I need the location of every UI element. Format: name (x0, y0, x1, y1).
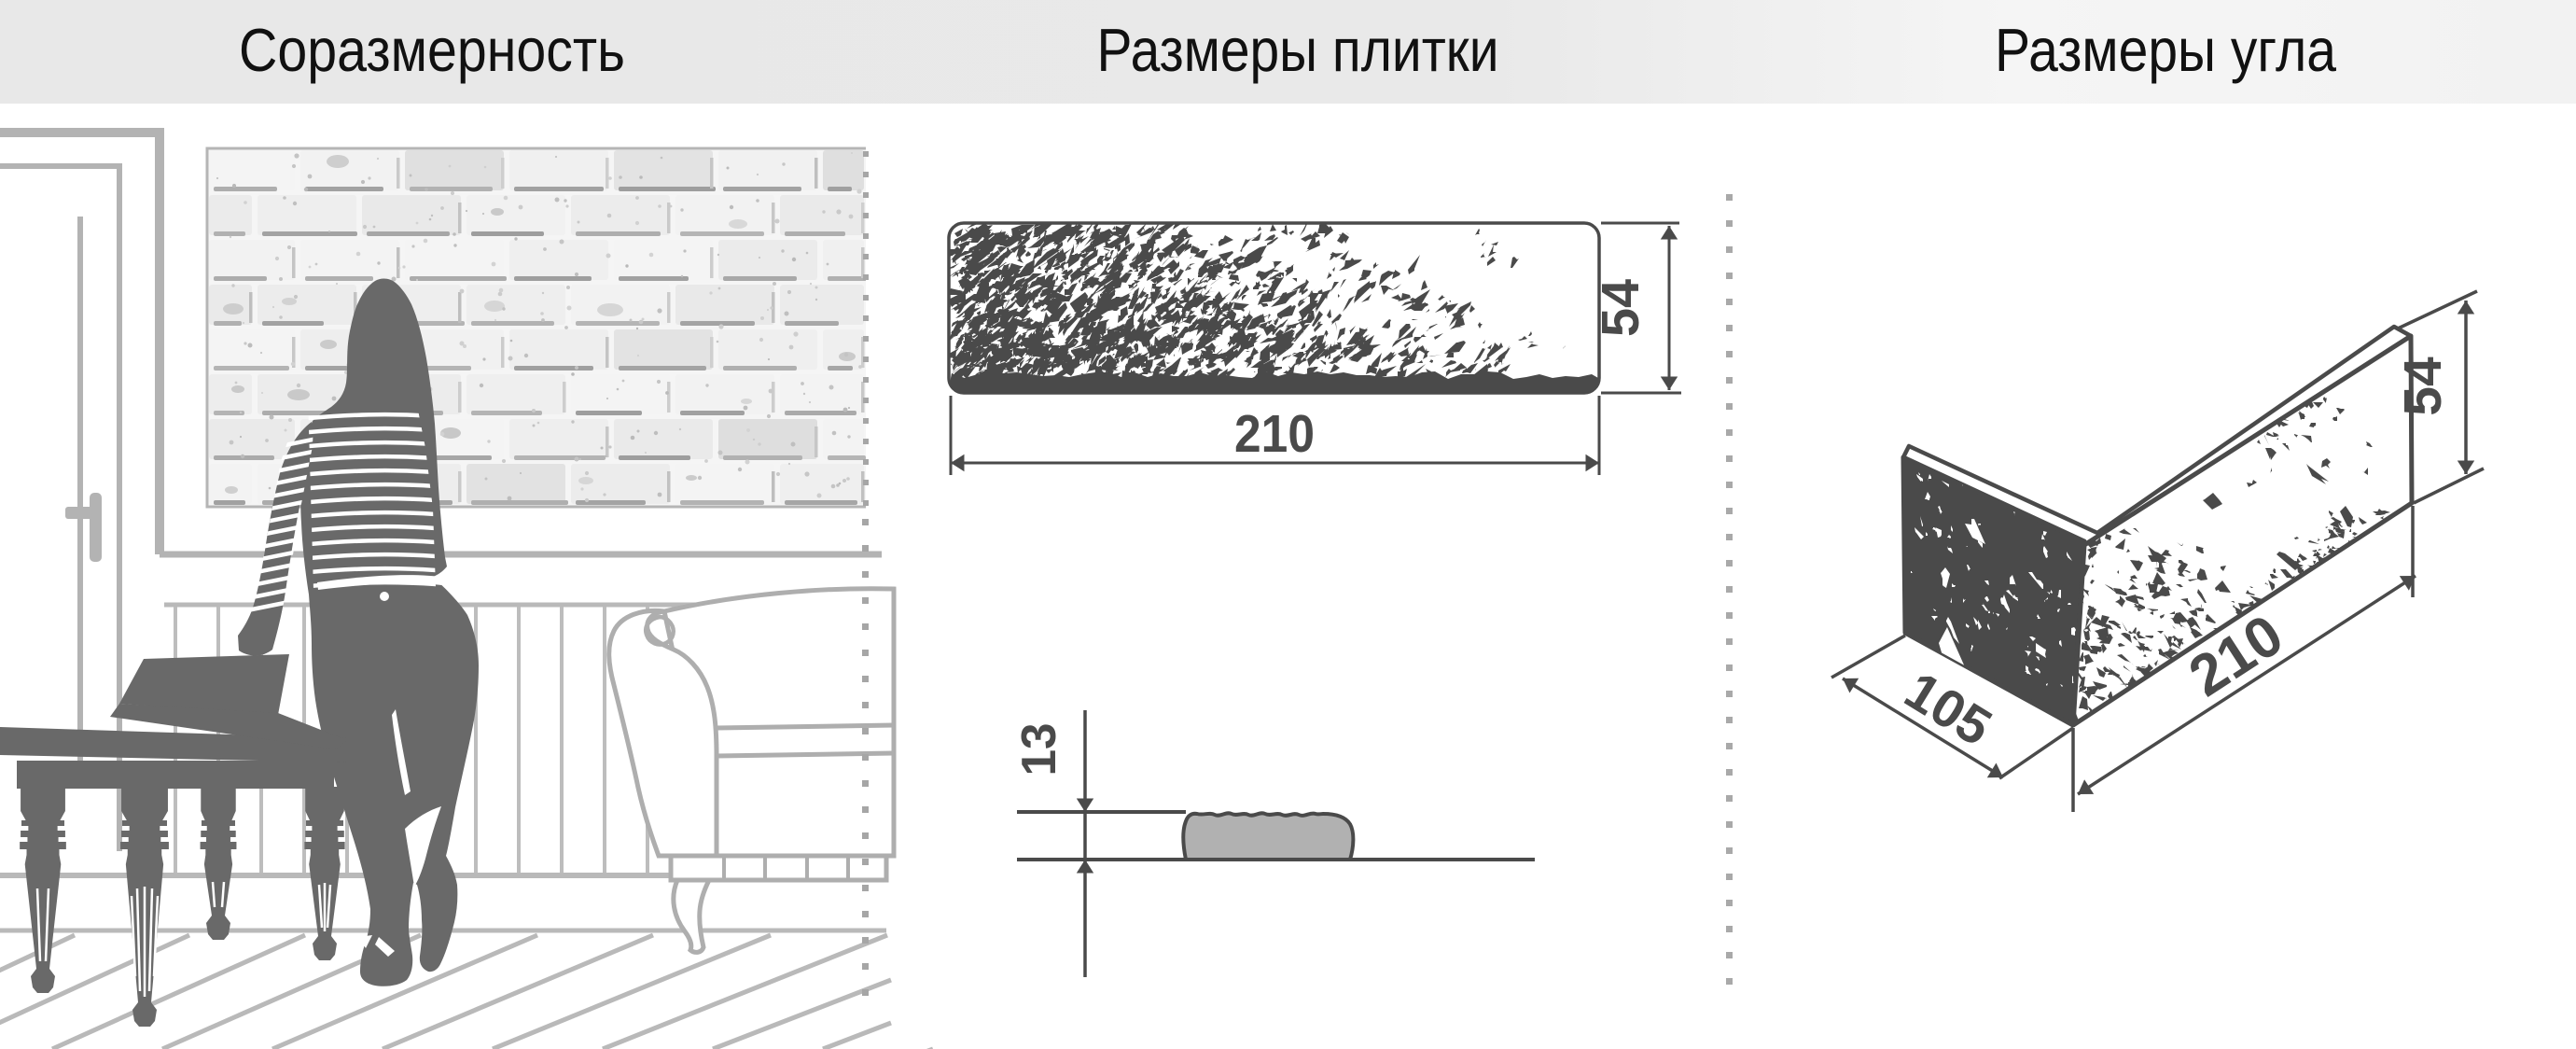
svg-text:210: 210 (1234, 404, 1315, 464)
svg-text:Размеры плитки: Размеры плитки (1097, 16, 1499, 84)
svg-text:54: 54 (2393, 357, 2453, 416)
svg-text:54: 54 (1591, 279, 1650, 337)
svg-text:13: 13 (1012, 723, 1066, 776)
svg-text:Соразмерность: Соразмерность (239, 16, 625, 84)
svg-text:Размеры угла: Размеры угла (1995, 16, 2337, 84)
